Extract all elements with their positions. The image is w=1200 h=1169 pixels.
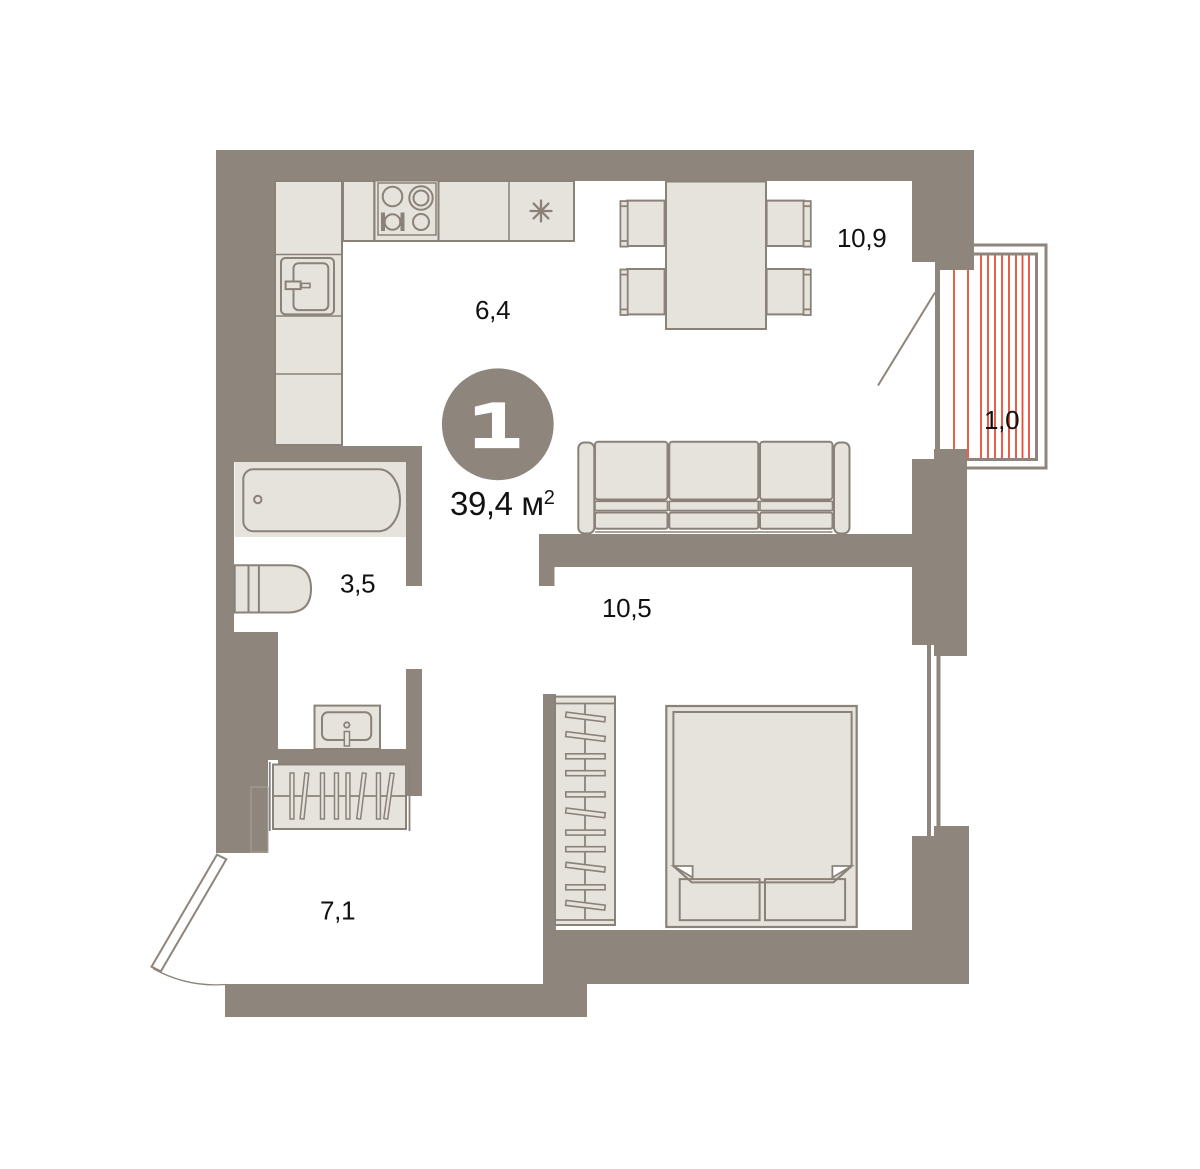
svg-text:1,0: 1,0 xyxy=(984,405,1019,435)
svg-text:39,4 м2: 39,4 м2 xyxy=(450,485,555,522)
svg-text:10,9: 10,9 xyxy=(837,223,886,253)
svg-text:6,4: 6,4 xyxy=(475,295,510,325)
svg-text:3,5: 3,5 xyxy=(340,569,375,599)
svg-text:7,1: 7,1 xyxy=(320,896,355,926)
svg-text:10,5: 10,5 xyxy=(602,593,651,623)
